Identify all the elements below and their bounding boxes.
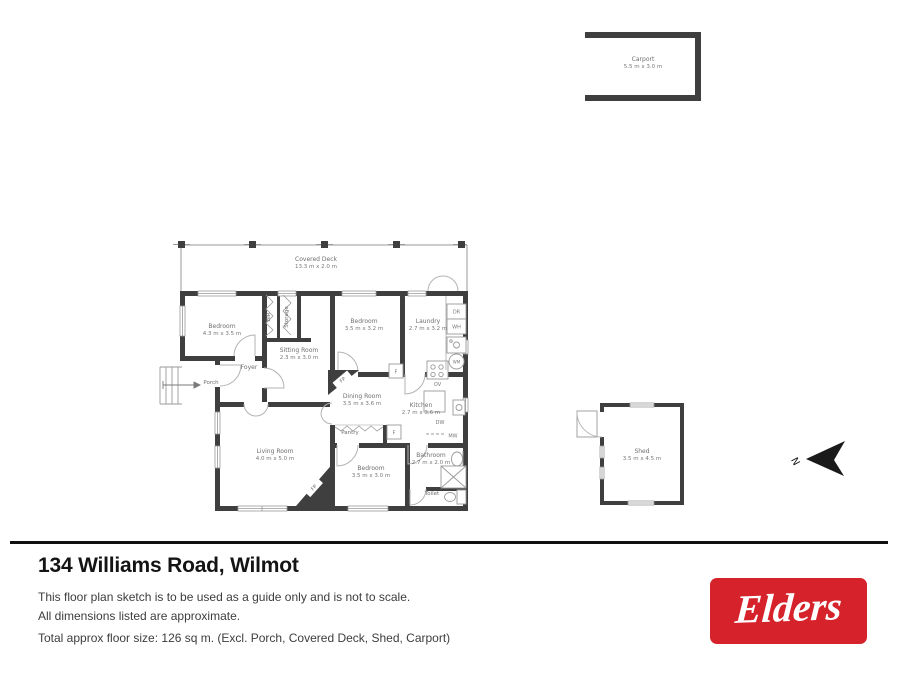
room-label-bedroom-1: Bedroom 4.3 m x 3.5 m bbox=[203, 323, 241, 339]
room-label-bedroom-2: Bedroom 3.5 m x 3.2 m bbox=[345, 318, 383, 334]
dryer-label: DR bbox=[453, 310, 461, 316]
room-name: Covered Deck bbox=[295, 256, 337, 264]
room-label-porch: Porch bbox=[203, 380, 218, 388]
room-dims: 3.5 m x 3.6 m bbox=[343, 401, 381, 409]
oven-label: OV bbox=[434, 382, 442, 388]
room-label-bedroom-3: Bedroom 3.5 m x 3.0 m bbox=[352, 465, 390, 481]
floorplan-page: FP FP bbox=[0, 0, 899, 675]
water-heater-label: WH bbox=[452, 325, 461, 331]
disclaimer-line-2: All dimensions listed are approximate. bbox=[38, 609, 240, 623]
room-label-laundry: Laundry 2.7 m x 3.2 m bbox=[409, 318, 447, 334]
room-label-covered-deck: Covered Deck 13.3 m x 2.0 m bbox=[295, 256, 337, 272]
total-floor-size-text: Total approx floor size: 126 sq m. (Excl… bbox=[38, 631, 450, 645]
room-dims: 2.3 m x 3.0 m bbox=[280, 355, 318, 363]
room-name: Porch bbox=[203, 380, 218, 388]
room-name: Bedroom bbox=[345, 318, 383, 326]
room-label-pantry: Pantry bbox=[341, 430, 359, 438]
disclaimer-line-1: This floor plan sketch is to be used as … bbox=[38, 590, 410, 604]
room-name: Storage bbox=[284, 306, 292, 328]
washing-machine-label: WM bbox=[453, 360, 461, 365]
room-name: Bathroom bbox=[412, 452, 450, 460]
north-label: N bbox=[788, 456, 801, 468]
room-name: Bedroom bbox=[203, 323, 241, 331]
room-dims: 2.7 m x 3.6 m bbox=[402, 410, 440, 418]
room-dims: 3.5 m x 3.0 m bbox=[352, 473, 390, 481]
room-dims: 3.5 m x 3.2 m bbox=[345, 326, 383, 334]
fireplace-living: FP bbox=[296, 461, 335, 506]
room-dims: 4.0 m x 5.0 m bbox=[256, 456, 294, 464]
room-name: Kitchen bbox=[402, 402, 440, 410]
room-name: BIR bbox=[266, 312, 274, 321]
room-dims: 13.3 m x 2.0 m bbox=[295, 264, 337, 272]
room-label-sitting-room: Sitting Room 2.3 m x 3.0 m bbox=[280, 347, 318, 363]
fridge-label: F bbox=[393, 431, 396, 437]
room-name: Living Room bbox=[256, 448, 294, 456]
room-name: Shed bbox=[623, 448, 661, 456]
room-label-shed: Shed 3.5 m x 4.5 m bbox=[623, 448, 661, 464]
door-swings bbox=[220, 276, 458, 505]
room-name: Sitting Room bbox=[280, 347, 318, 355]
room-dims: 3.5 m x 4.5 m bbox=[623, 456, 661, 464]
room-name: Bedroom bbox=[352, 465, 390, 473]
room-name: Toilet bbox=[425, 491, 439, 499]
room-dims: 4.3 m x 3.5 m bbox=[203, 331, 241, 339]
dishwasher-label: DW bbox=[436, 420, 445, 426]
room-label-bathroom: Bathroom 2.7 m x 2.0 m bbox=[412, 452, 450, 468]
room-name: Carport bbox=[624, 56, 662, 64]
room-name: Pantry bbox=[341, 430, 359, 438]
elders-logo-text: Elders bbox=[734, 586, 844, 636]
room-label-kitchen: Kitchen 2.7 m x 3.6 m bbox=[402, 402, 440, 418]
elders-logo: Elders bbox=[710, 578, 867, 644]
shed-door bbox=[577, 411, 602, 437]
divider-line bbox=[10, 541, 888, 544]
porch-arrow-icon bbox=[163, 381, 200, 389]
fridge-label: F bbox=[395, 370, 398, 376]
room-name: Laundry bbox=[409, 318, 447, 326]
room-name: Foyer bbox=[241, 364, 258, 372]
microwave-label: MW bbox=[448, 434, 457, 440]
room-dims: 5.5 m x 3.0 m bbox=[624, 64, 662, 72]
disclaimer-text: This floor plan sketch is to be used as … bbox=[38, 588, 410, 625]
room-dims: 2.7 m x 2.0 m bbox=[412, 460, 450, 468]
room-label-bir: BIR bbox=[266, 312, 274, 321]
room-label-carport: Carport 5.5 m x 3.0 m bbox=[624, 56, 662, 72]
room-name: Dining Room bbox=[343, 393, 381, 401]
room-label-storage: Storage bbox=[284, 306, 292, 328]
room-label-living-room: Living Room 4.0 m x 5.0 m bbox=[256, 448, 294, 464]
room-label-toilet: Toilet bbox=[425, 491, 439, 499]
page-title: 134 Williams Road, Wilmot bbox=[38, 554, 299, 578]
room-dims: 2.7 m x 3.2 m bbox=[409, 326, 447, 334]
fireplace-dining: FP bbox=[328, 370, 359, 395]
north-arrow-icon: N bbox=[788, 441, 845, 476]
room-label-dining-room: Dining Room 3.5 m x 3.6 m bbox=[343, 393, 381, 409]
room-label-foyer: Foyer bbox=[241, 364, 258, 372]
